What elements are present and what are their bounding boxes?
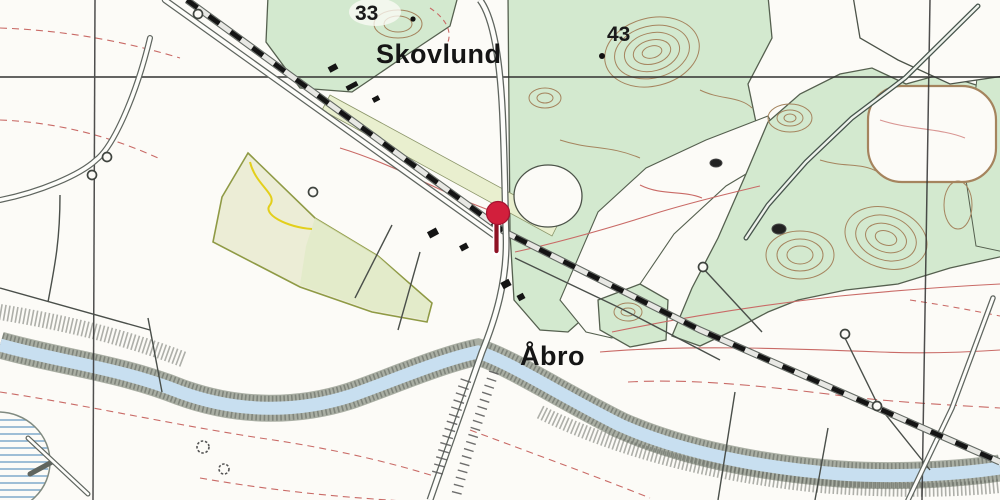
elevation-dot-43	[599, 53, 605, 59]
elevation-dot-33	[410, 16, 415, 21]
pin-head	[487, 202, 510, 225]
elevation-label-33: 33	[355, 2, 378, 25]
topographic-map: 33 43 Skovlund Åbro	[0, 0, 1000, 500]
elevation-label-43: 43	[607, 23, 630, 46]
place-label-skovlund: Skovlund	[376, 39, 502, 69]
place-label-aabro: Åbro	[520, 340, 585, 371]
map-viewport[interactable]: 33 43 Skovlund Åbro	[0, 0, 1000, 500]
